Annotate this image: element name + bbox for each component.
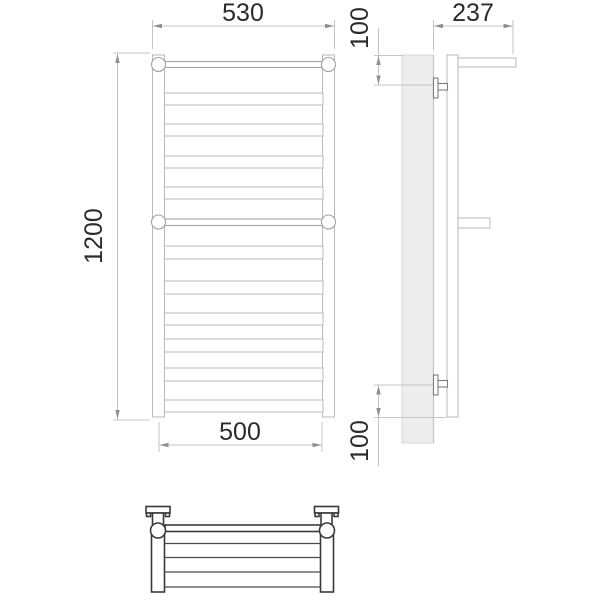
dim-width-bottom: 500: [159, 418, 322, 452]
front-rung-tube: [165, 93, 324, 105]
dim-arrow: [325, 24, 334, 28]
bracket-stem: [438, 381, 448, 388]
dim-height-label: 1200: [80, 208, 108, 264]
bracket-foot: [315, 513, 319, 517]
front-rung-tube: [165, 246, 324, 259]
plan-back-tube: [165, 525, 321, 532]
dim-offset-top-label: 100: [346, 7, 374, 49]
dim-arrow: [376, 56, 380, 65]
side-top-bracket: [434, 78, 448, 98]
dim-arrow: [153, 24, 162, 28]
side-bottom-bracket: [434, 375, 448, 395]
plan-right-post-circle: [320, 523, 335, 538]
dim-width-top: 530: [153, 0, 335, 49]
bracket-flange: [315, 507, 339, 514]
side-top-shelf: [458, 58, 516, 67]
front-rung-tube: [165, 368, 324, 381]
bracket-stem: [438, 84, 448, 91]
front-rung-tube: [165, 281, 324, 294]
front-rungs: [165, 93, 324, 412]
bracket-foot: [166, 513, 170, 517]
dim-arrow: [504, 24, 513, 28]
dim-arrow: [376, 408, 380, 417]
front-mid-left-joint-circle: [152, 215, 166, 229]
front-mid-right-joint-circle: [322, 215, 336, 229]
plan-left-arm: [152, 534, 165, 593]
front-rung-tube: [165, 187, 324, 199]
dim-width-top-label: 530: [222, 0, 264, 27]
dim-offset-bottom-label: 100: [346, 420, 374, 462]
bracket-foot: [334, 513, 338, 517]
plan-left-post-circle: [151, 523, 166, 538]
side-mid-hook: [458, 218, 490, 228]
dim-arrow: [160, 443, 169, 447]
plan-right-arm: [321, 534, 334, 593]
dim-height: 1200: [80, 53, 150, 420]
plan-shelf-bars: [165, 544, 321, 588]
dim-width-bottom-label: 500: [219, 418, 261, 446]
bracket-foot: [147, 513, 151, 517]
front-rung-tube: [165, 313, 324, 325]
front-view: [152, 55, 336, 417]
dim-arrow: [434, 24, 443, 28]
front-top-rail: [159, 62, 329, 68]
front-rung-tube: [165, 124, 324, 136]
dim-arrow: [115, 54, 119, 63]
dim-arrow: [376, 76, 380, 85]
front-rung-tube: [165, 339, 324, 352]
dim-depth-label: 237: [452, 0, 494, 27]
dim-arrow: [376, 386, 380, 395]
front-rung-tube: [165, 400, 324, 412]
bracket-flange: [146, 507, 170, 514]
bracket-wall-plate: [434, 375, 439, 395]
bracket-wall-plate: [434, 78, 439, 98]
front-top-right-joint-circle: [322, 58, 336, 72]
towel-rail-technical-drawing: 530 1200 500 237 100: [0, 0, 600, 600]
front-top-left-joint-circle: [152, 58, 166, 72]
dim-arrow: [115, 410, 119, 419]
front-left-post: [153, 55, 165, 417]
top-view: [146, 507, 339, 593]
front-rung-tube: [165, 156, 324, 168]
dim-depth: 237: [434, 0, 514, 54]
front-mid-rail: [159, 219, 329, 226]
dim-arrow: [313, 443, 322, 447]
side-post: [447, 55, 458, 417]
front-right-post: [323, 55, 335, 417]
